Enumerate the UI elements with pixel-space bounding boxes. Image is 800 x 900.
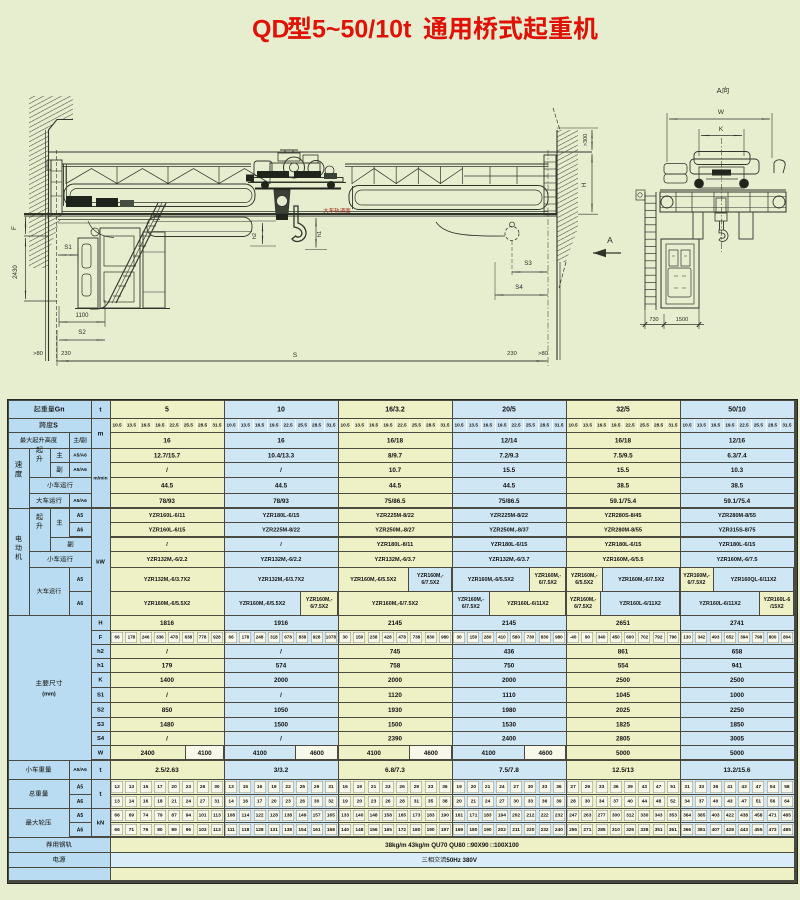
svg-text:33: 33 xyxy=(428,784,434,790)
svg-text:12.5/13: 12.5/13 xyxy=(612,767,634,774)
svg-text:YZR225M-8/22: YZR225M-8/22 xyxy=(262,528,300,534)
svg-text:31.5: 31.5 xyxy=(668,423,678,428)
svg-text:H: H xyxy=(98,621,102,627)
svg-text:28.5: 28.5 xyxy=(768,423,778,428)
svg-text:A: A xyxy=(717,86,722,95)
svg-text:702: 702 xyxy=(641,635,649,640)
svg-text:79: 79 xyxy=(157,813,163,819)
svg-text:161: 161 xyxy=(455,813,463,819)
svg-text:25.5: 25.5 xyxy=(754,423,764,428)
svg-text:YZR132M,-6/3.7X2: YZR132M,-6/3.7X2 xyxy=(144,577,190,583)
svg-text:31: 31 xyxy=(414,799,420,805)
svg-text:30: 30 xyxy=(343,635,349,640)
svg-text:750: 750 xyxy=(504,662,515,669)
svg-text:16.5: 16.5 xyxy=(711,423,721,428)
svg-text:330: 330 xyxy=(640,813,648,819)
svg-text:171: 171 xyxy=(469,813,477,819)
svg-text:S2: S2 xyxy=(97,708,104,714)
svg-text:27: 27 xyxy=(200,799,206,805)
svg-text:78/93: 78/93 xyxy=(273,498,289,505)
svg-text:4100: 4100 xyxy=(367,750,382,757)
svg-text:15: 15 xyxy=(143,784,149,790)
svg-text:48: 48 xyxy=(656,799,662,805)
svg-text:2000: 2000 xyxy=(274,677,289,684)
svg-text:16: 16 xyxy=(342,784,348,790)
svg-text:941: 941 xyxy=(732,662,743,669)
svg-text:574: 574 xyxy=(276,662,287,669)
svg-text:138: 138 xyxy=(284,813,292,819)
svg-text:21: 21 xyxy=(171,799,177,805)
svg-text:5: 5 xyxy=(165,407,169,414)
svg-text:271: 271 xyxy=(583,827,591,833)
svg-text:2145: 2145 xyxy=(388,620,403,627)
svg-text:758: 758 xyxy=(390,662,401,669)
svg-text:1980: 1980 xyxy=(502,707,517,714)
svg-text:Gn: Gn xyxy=(55,407,65,414)
svg-text:K: K xyxy=(719,126,724,133)
svg-text:5~50/10t: 5~50/10t xyxy=(312,16,412,44)
svg-text:312: 312 xyxy=(626,813,634,819)
svg-text:S4: S4 xyxy=(515,284,523,291)
svg-text:928: 928 xyxy=(213,635,221,640)
svg-text:10: 10 xyxy=(277,407,285,414)
svg-text:222: 222 xyxy=(541,813,549,819)
svg-text:2250: 2250 xyxy=(730,707,745,714)
svg-text:A5: A5 xyxy=(77,577,84,583)
svg-text:172: 172 xyxy=(398,827,406,833)
svg-text:6.8/7.3: 6.8/7.3 xyxy=(385,767,405,774)
svg-text:13.5: 13.5 xyxy=(127,423,137,428)
svg-text:22: 22 xyxy=(285,784,291,790)
svg-text:263: 263 xyxy=(583,813,591,819)
svg-text:19.5: 19.5 xyxy=(155,423,165,428)
svg-text:10.5: 10.5 xyxy=(455,423,465,428)
svg-text:80: 80 xyxy=(157,827,163,833)
svg-text:QD: QD xyxy=(252,16,290,44)
svg-text:12/16: 12/16 xyxy=(729,437,746,444)
svg-text:148: 148 xyxy=(370,813,378,819)
svg-text:211: 211 xyxy=(512,827,520,833)
svg-text:730: 730 xyxy=(527,635,535,640)
svg-text:300: 300 xyxy=(612,813,620,819)
svg-text:16: 16 xyxy=(257,784,263,790)
svg-text:16/18: 16/18 xyxy=(615,437,632,444)
svg-text:21: 21 xyxy=(471,799,477,805)
svg-text:1000: 1000 xyxy=(730,692,745,699)
svg-text:285: 285 xyxy=(598,827,606,833)
svg-text:450: 450 xyxy=(612,635,620,640)
svg-text:31: 31 xyxy=(328,784,334,790)
svg-text:47: 47 xyxy=(656,784,662,790)
svg-text:16.5: 16.5 xyxy=(369,423,379,428)
svg-text:40: 40 xyxy=(627,799,633,805)
svg-text:485: 485 xyxy=(783,827,791,833)
svg-text:20/5: 20/5 xyxy=(502,407,516,414)
svg-text:25.5: 25.5 xyxy=(298,423,308,428)
svg-text:36: 36 xyxy=(613,784,619,790)
svg-text:33: 33 xyxy=(542,784,548,790)
svg-text:A5: A5 xyxy=(77,513,84,519)
svg-text:A5/A6: A5/A6 xyxy=(73,453,87,459)
svg-text:804: 804 xyxy=(783,635,791,640)
svg-text:59.1/75.4: 59.1/75.4 xyxy=(724,498,751,505)
svg-text:16: 16 xyxy=(243,799,249,805)
svg-text:133: 133 xyxy=(341,813,349,819)
svg-text:1050: 1050 xyxy=(274,707,289,714)
svg-text:342: 342 xyxy=(698,635,706,640)
svg-text:16.5: 16.5 xyxy=(483,423,493,428)
svg-text:17: 17 xyxy=(257,799,263,805)
svg-text:YZR225M-8/22: YZR225M-8/22 xyxy=(490,513,528,519)
svg-text:16.5: 16.5 xyxy=(141,423,151,428)
svg-text:23: 23 xyxy=(371,799,377,805)
svg-text:YZR160M,-: YZR160M,- xyxy=(571,573,598,579)
svg-text:240: 240 xyxy=(555,827,563,833)
svg-text:YZR160M,-: YZR160M,- xyxy=(535,573,562,579)
svg-text:YZR250M,-8/27: YZR250M,-8/27 xyxy=(375,528,414,534)
svg-text:66: 66 xyxy=(229,635,235,640)
svg-text:2741: 2741 xyxy=(730,620,745,627)
svg-text:33: 33 xyxy=(699,784,705,790)
svg-text:13: 13 xyxy=(228,784,234,790)
svg-text:30: 30 xyxy=(528,784,534,790)
svg-text:12/14: 12/14 xyxy=(501,437,518,444)
svg-text:/15X2: /15X2 xyxy=(770,604,784,610)
svg-text:36: 36 xyxy=(713,784,719,790)
svg-text:2390: 2390 xyxy=(388,735,403,742)
svg-text:F: F xyxy=(99,635,103,641)
svg-text:23: 23 xyxy=(385,784,391,790)
svg-text:3/3.2: 3/3.2 xyxy=(274,767,289,774)
svg-text:87: 87 xyxy=(171,813,177,819)
svg-text:YZR132M,-6/2.2: YZR132M,-6/2.2 xyxy=(146,557,187,563)
svg-text:YZR225M-8/22: YZR225M-8/22 xyxy=(376,513,414,519)
svg-text:S3: S3 xyxy=(524,260,532,267)
svg-text:2430: 2430 xyxy=(12,265,19,279)
svg-text:158: 158 xyxy=(384,813,392,819)
svg-text:13.5: 13.5 xyxy=(241,423,251,428)
svg-text:YZR160L-6/11X2: YZR160L-6/11X2 xyxy=(507,601,549,607)
svg-text:37: 37 xyxy=(699,799,705,805)
svg-text:15.5: 15.5 xyxy=(617,467,630,474)
svg-text:23: 23 xyxy=(186,784,192,790)
svg-text:428: 428 xyxy=(384,635,392,640)
svg-text:17: 17 xyxy=(157,784,163,790)
svg-text:2500: 2500 xyxy=(616,677,631,684)
svg-text:792: 792 xyxy=(655,635,663,640)
svg-text:202: 202 xyxy=(512,813,520,819)
svg-text:580: 580 xyxy=(512,635,520,640)
svg-text:54: 54 xyxy=(770,784,776,790)
svg-text:230: 230 xyxy=(507,351,517,357)
svg-text:455: 455 xyxy=(754,827,762,833)
svg-text:K: K xyxy=(98,678,103,684)
svg-text:YZR160L-6/11X2: YZR160L-6/11X2 xyxy=(699,601,741,607)
svg-text:m/min: m/min xyxy=(93,476,107,482)
svg-text:247: 247 xyxy=(569,813,577,819)
svg-text:407: 407 xyxy=(712,827,720,833)
svg-text:148: 148 xyxy=(355,827,363,833)
svg-text:YZR180L-6/15: YZR180L-6/15 xyxy=(719,542,756,548)
svg-text:20: 20 xyxy=(471,784,477,790)
svg-text:318: 318 xyxy=(270,635,278,640)
svg-text:6/5.5X2: 6/5.5X2 xyxy=(575,580,593,586)
svg-text:S: S xyxy=(293,352,298,359)
svg-text:2500: 2500 xyxy=(730,677,745,684)
svg-text:838: 838 xyxy=(299,635,307,640)
svg-text:1100: 1100 xyxy=(76,313,90,319)
svg-text:473: 473 xyxy=(769,827,777,833)
svg-text:33: 33 xyxy=(528,799,534,805)
svg-text:6/7.5X2: 6/7.5X2 xyxy=(310,604,328,610)
svg-text:15.5: 15.5 xyxy=(503,467,516,474)
svg-text:118: 118 xyxy=(242,827,250,833)
svg-text:730: 730 xyxy=(649,317,658,323)
svg-text:658: 658 xyxy=(732,648,743,655)
svg-text:39: 39 xyxy=(627,784,633,790)
svg-text:24: 24 xyxy=(485,799,491,805)
svg-text:471: 471 xyxy=(769,813,777,819)
svg-text:h1: h1 xyxy=(317,231,323,237)
svg-text:29: 29 xyxy=(585,784,591,790)
svg-text:2145: 2145 xyxy=(502,620,517,627)
svg-text:485: 485 xyxy=(783,813,791,819)
svg-text:22.5: 22.5 xyxy=(512,423,522,428)
svg-text:22.5: 22.5 xyxy=(284,423,294,428)
svg-text:t: t xyxy=(99,406,102,413)
svg-text:19.5: 19.5 xyxy=(497,423,507,428)
svg-text:745: 745 xyxy=(390,648,401,655)
svg-text:69: 69 xyxy=(129,813,135,819)
svg-text:6.3/7.4: 6.3/7.4 xyxy=(727,452,747,459)
svg-text:6/7.5X2: 6/7.5X2 xyxy=(462,604,480,610)
svg-text:980: 980 xyxy=(555,635,563,640)
svg-text:2000: 2000 xyxy=(388,677,403,684)
svg-text:150: 150 xyxy=(470,635,478,640)
svg-text:S1: S1 xyxy=(64,244,72,251)
svg-text:202: 202 xyxy=(498,827,506,833)
svg-text:YZR132M,-6/3.7X2: YZR132M,-6/3.7X2 xyxy=(258,577,304,583)
svg-text:12.7/15.7: 12.7/15.7 xyxy=(154,452,181,459)
svg-text:19: 19 xyxy=(357,784,363,790)
svg-text:830: 830 xyxy=(541,635,549,640)
svg-text:44.5: 44.5 xyxy=(503,482,516,489)
svg-text:13.2/15.6: 13.2/15.6 xyxy=(723,767,750,774)
svg-text:180: 180 xyxy=(469,827,477,833)
svg-text:6/7.5X2: 6/7.5X2 xyxy=(539,580,557,586)
svg-text:W: W xyxy=(98,751,104,757)
svg-text:165: 165 xyxy=(384,827,392,833)
svg-text:15: 15 xyxy=(243,784,249,790)
svg-text:21: 21 xyxy=(485,784,491,790)
svg-text:YZR280S-8/45: YZR280S-8/45 xyxy=(604,513,641,519)
svg-text:28.5: 28.5 xyxy=(312,423,322,428)
svg-text:19.5: 19.5 xyxy=(383,423,393,428)
svg-text:YZR160M,-6/5.5X2: YZR160M,-6/5.5X2 xyxy=(144,601,190,607)
svg-text:10.5: 10.5 xyxy=(227,423,237,428)
svg-text:YZR250M,-8/37: YZR250M,-8/37 xyxy=(489,528,528,534)
svg-text:38.5: 38.5 xyxy=(731,482,744,489)
svg-text:310: 310 xyxy=(612,827,620,833)
svg-text:1400: 1400 xyxy=(160,677,175,684)
svg-text:28.5: 28.5 xyxy=(540,423,550,428)
svg-text:130: 130 xyxy=(683,635,691,640)
svg-text:10.5: 10.5 xyxy=(113,423,123,428)
svg-text:798: 798 xyxy=(755,635,763,640)
svg-text:YZR160QL-6/11X2: YZR160QL-6/11X2 xyxy=(731,577,777,583)
svg-text:403: 403 xyxy=(712,813,720,819)
svg-text:20: 20 xyxy=(271,799,277,805)
svg-text:/: / xyxy=(280,692,282,699)
svg-text:30: 30 xyxy=(513,799,519,805)
svg-text:678: 678 xyxy=(284,635,292,640)
svg-text:27: 27 xyxy=(570,784,576,790)
svg-text:26: 26 xyxy=(399,784,405,790)
svg-text:28.5: 28.5 xyxy=(426,423,436,428)
svg-text:19: 19 xyxy=(271,784,277,790)
svg-text:16/3.2: 16/3.2 xyxy=(385,407,405,414)
svg-text:24: 24 xyxy=(186,799,192,805)
svg-text:150: 150 xyxy=(356,635,364,640)
svg-text:18: 18 xyxy=(157,799,163,805)
svg-text:/: / xyxy=(280,735,282,742)
svg-text:76: 76 xyxy=(143,827,149,833)
svg-text:YZR160M,-6/7.5X2: YZR160M,-6/7.5X2 xyxy=(618,577,664,583)
svg-text:178: 178 xyxy=(128,635,136,640)
svg-text:8/9.7: 8/9.7 xyxy=(388,452,403,459)
svg-text:32/5: 32/5 xyxy=(616,407,630,414)
svg-text:A5/A6: A5/A6 xyxy=(73,767,87,773)
svg-text:30: 30 xyxy=(457,635,463,640)
svg-text:478: 478 xyxy=(170,635,178,640)
svg-text:25.5: 25.5 xyxy=(640,423,650,428)
svg-text:800: 800 xyxy=(769,635,777,640)
svg-text:30: 30 xyxy=(585,799,591,805)
svg-text:YZR160M,-6/5.5X2: YZR160M,-6/5.5X2 xyxy=(468,577,514,583)
svg-text:1530: 1530 xyxy=(502,721,517,728)
svg-text:44.5: 44.5 xyxy=(389,482,402,489)
svg-text:443: 443 xyxy=(740,827,748,833)
svg-text:kN: kN xyxy=(97,821,104,827)
svg-text:YZR160M,-: YZR160M,- xyxy=(570,597,597,603)
svg-text:44.5: 44.5 xyxy=(275,482,288,489)
svg-text:190: 190 xyxy=(427,827,435,833)
svg-text:40: 40 xyxy=(713,799,719,805)
svg-text:t: t xyxy=(99,791,102,798)
svg-text:169: 169 xyxy=(455,827,463,833)
svg-text:52: 52 xyxy=(670,799,676,805)
svg-text:19: 19 xyxy=(342,799,348,805)
svg-text:2.5/2.63: 2.5/2.63 xyxy=(155,767,179,774)
svg-text:108: 108 xyxy=(227,813,235,819)
svg-text:YZR132M,-6/3.7: YZR132M,-6/3.7 xyxy=(374,557,415,563)
svg-text:16.5: 16.5 xyxy=(597,423,607,428)
svg-text:113: 113 xyxy=(213,813,221,819)
svg-text:340: 340 xyxy=(598,635,606,640)
svg-text:S3: S3 xyxy=(97,722,105,728)
svg-text:20: 20 xyxy=(456,799,462,805)
svg-text:13: 13 xyxy=(114,799,120,805)
svg-text:428: 428 xyxy=(726,827,734,833)
svg-text:YZR160M,-6/5.5X2: YZR160M,-6/5.5X2 xyxy=(350,577,396,583)
svg-text:YZR160M,-6/5.5: YZR160M,-6/5.5 xyxy=(602,557,643,563)
svg-text:113: 113 xyxy=(213,827,221,833)
svg-text:90: 90 xyxy=(585,635,591,640)
svg-text:140: 140 xyxy=(355,813,363,819)
svg-text:1930: 1930 xyxy=(388,707,403,714)
svg-text:YZR160L-6/11: YZR160L-6/11 xyxy=(149,513,185,519)
svg-text:56: 56 xyxy=(770,799,776,805)
svg-text:37: 37 xyxy=(613,799,619,805)
svg-text:31.5: 31.5 xyxy=(554,423,564,428)
svg-text:19.5: 19.5 xyxy=(611,423,621,428)
svg-text:778: 778 xyxy=(199,635,207,640)
svg-text:43: 43 xyxy=(727,799,733,805)
svg-text:25: 25 xyxy=(300,784,306,790)
svg-text:2400: 2400 xyxy=(141,750,156,757)
svg-text:364: 364 xyxy=(683,813,691,819)
svg-text:64: 64 xyxy=(784,799,790,805)
svg-text:25.5: 25.5 xyxy=(526,423,536,428)
svg-text:220: 220 xyxy=(526,827,534,833)
svg-text:7.5/7.8: 7.5/7.8 xyxy=(499,767,519,774)
svg-text:31.5: 31.5 xyxy=(326,423,336,428)
svg-text:13.5: 13.5 xyxy=(583,423,593,428)
svg-text:16: 16 xyxy=(143,799,149,805)
svg-text:38: 38 xyxy=(442,799,448,805)
svg-text:/: / xyxy=(166,735,168,742)
svg-text:25.5: 25.5 xyxy=(184,423,194,428)
svg-text:165: 165 xyxy=(398,813,406,819)
svg-text:385: 385 xyxy=(697,813,705,819)
svg-text:43: 43 xyxy=(642,784,648,790)
svg-text:YZR280M-8/55: YZR280M-8/55 xyxy=(604,528,642,534)
svg-text:A6: A6 xyxy=(77,827,84,833)
svg-text:179: 179 xyxy=(162,662,173,669)
svg-text:1500: 1500 xyxy=(388,721,403,728)
svg-text:351: 351 xyxy=(655,827,663,833)
svg-text:26: 26 xyxy=(200,784,206,790)
svg-text:738: 738 xyxy=(413,635,421,640)
svg-text:59.1/75.4: 59.1/75.4 xyxy=(610,498,637,505)
svg-text:16: 16 xyxy=(277,437,285,444)
svg-text:28.5: 28.5 xyxy=(198,423,208,428)
svg-text:h2: h2 xyxy=(97,649,104,655)
svg-text:16: 16 xyxy=(163,437,171,444)
svg-text:2025: 2025 xyxy=(616,707,631,714)
svg-text:F: F xyxy=(11,226,18,230)
svg-text:4600: 4600 xyxy=(538,750,553,757)
svg-text:47: 47 xyxy=(741,799,747,805)
svg-text:22.5: 22.5 xyxy=(170,423,180,428)
svg-text:458: 458 xyxy=(754,813,762,819)
svg-text:24: 24 xyxy=(499,784,505,790)
svg-text:5000: 5000 xyxy=(730,750,745,757)
svg-text:4100: 4100 xyxy=(253,750,268,757)
svg-text:131: 131 xyxy=(270,827,278,833)
svg-text:554: 554 xyxy=(618,662,629,669)
svg-text:394: 394 xyxy=(740,635,748,640)
svg-text:YZR132M,-6/3.7: YZR132M,-6/3.7 xyxy=(488,557,529,563)
svg-text:36: 36 xyxy=(556,784,562,790)
svg-text:1500: 1500 xyxy=(676,317,688,323)
svg-text:10.5: 10.5 xyxy=(341,423,351,428)
svg-text:22.5: 22.5 xyxy=(398,423,408,428)
svg-text:31.5: 31.5 xyxy=(440,423,450,428)
svg-text:35: 35 xyxy=(428,799,434,805)
svg-text:30: 30 xyxy=(214,784,220,790)
svg-text:796: 796 xyxy=(669,635,677,640)
